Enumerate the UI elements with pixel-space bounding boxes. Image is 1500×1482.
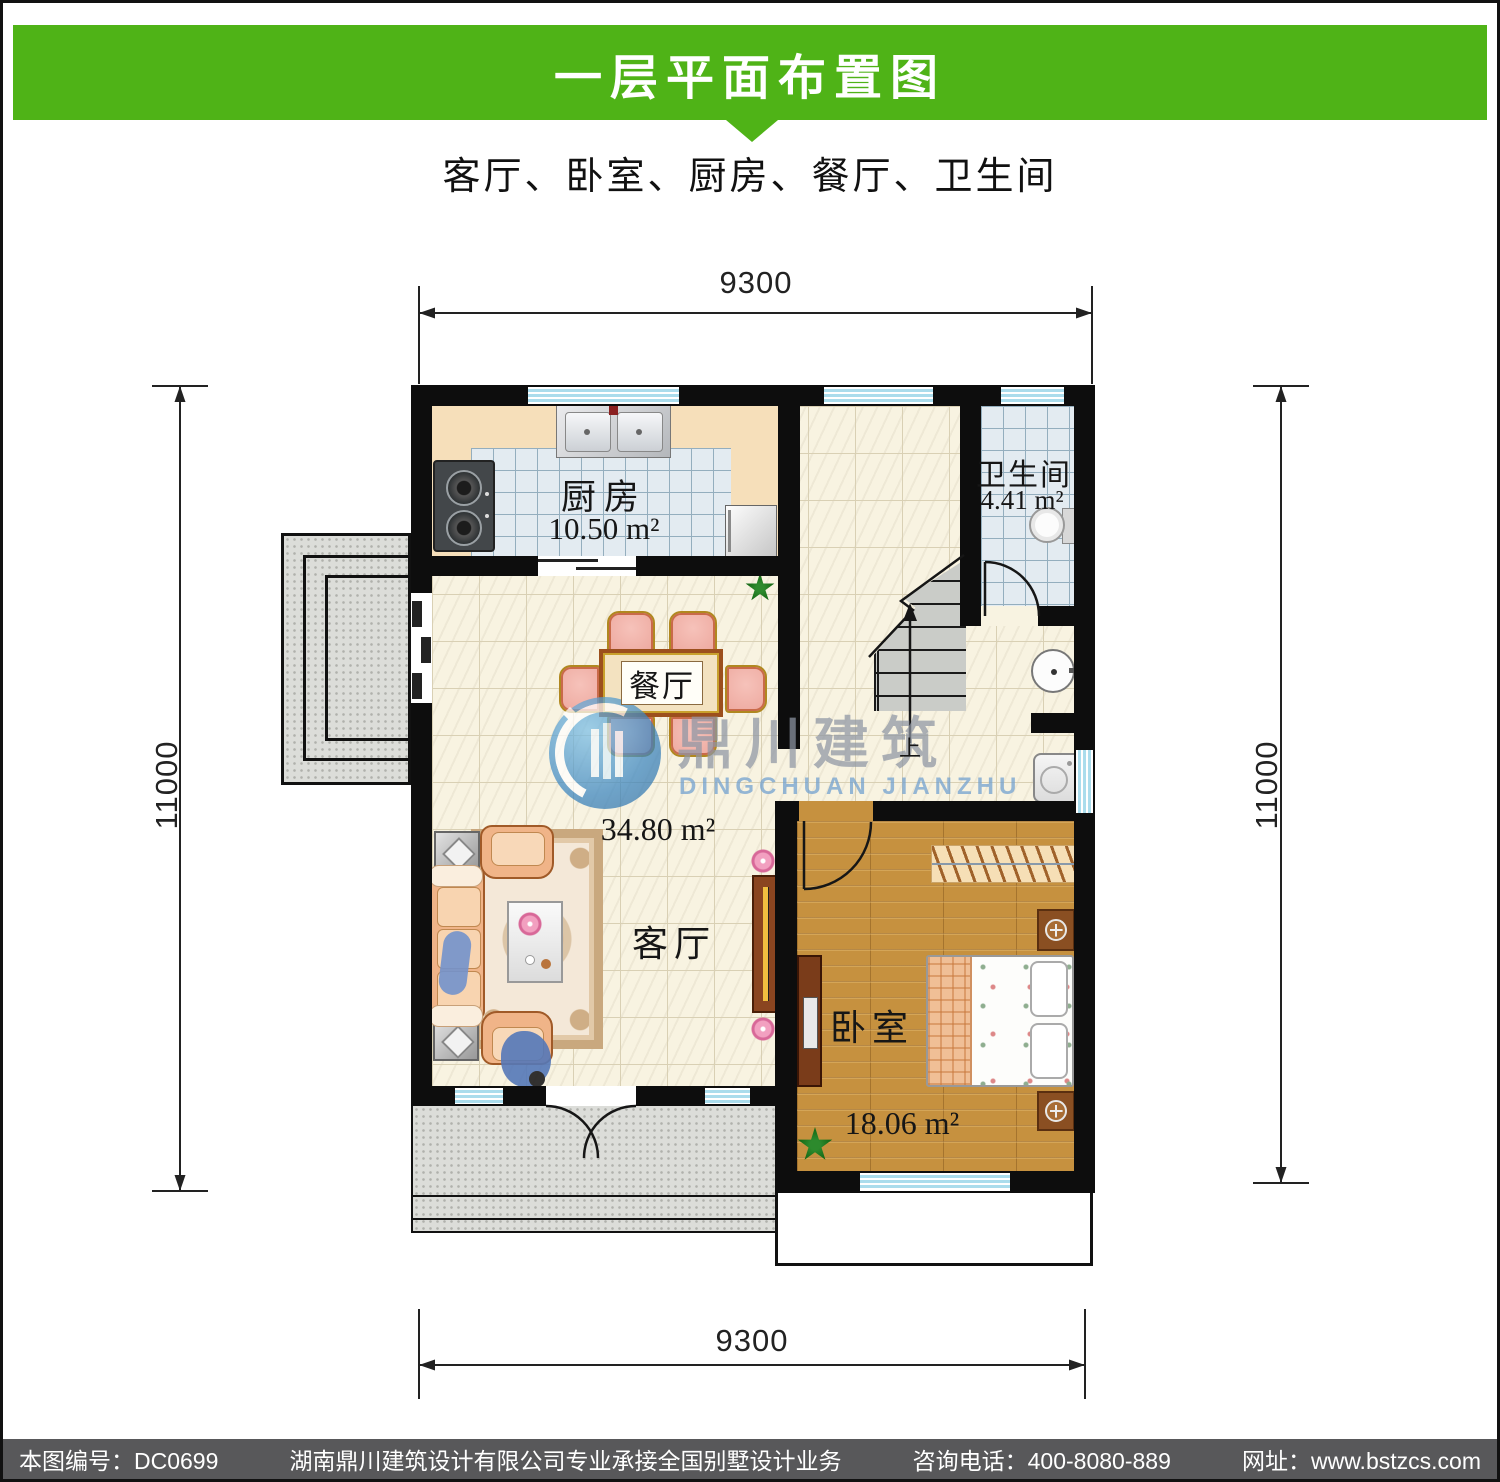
- bed: [926, 955, 1074, 1087]
- bathroom-door-opening: [981, 606, 1038, 626]
- tv-screen: [763, 887, 768, 1001]
- footer-company: 湖南鼎川建筑设计有限公司专业承接全国别墅设计业务: [290, 1442, 842, 1476]
- burner: [446, 510, 482, 546]
- bed-pillow: [1030, 961, 1068, 1017]
- logo-bar: [615, 731, 623, 777]
- kitchen-area-label: 10.50 m²: [539, 511, 669, 547]
- fridge-handle: [728, 510, 731, 552]
- kitchen-sink-icon: [556, 402, 671, 458]
- door-tick: [421, 637, 431, 663]
- slide-leaf: [576, 567, 636, 570]
- door-tick: [412, 601, 422, 627]
- nightstand: [1037, 909, 1075, 951]
- porch-step-line: [411, 1195, 781, 1197]
- wall-top: [411, 385, 1095, 406]
- window-living-right: [705, 1088, 750, 1104]
- dim-left-value: 11000: [149, 737, 185, 833]
- bedroom-terrace: [775, 1189, 1093, 1266]
- dining-label: 餐厅: [629, 661, 695, 706]
- sofa-cushion: [437, 887, 481, 927]
- window-kitchen: [528, 387, 679, 404]
- dining-chair: [669, 611, 717, 653]
- washer-drum: [1040, 766, 1068, 794]
- dim-top-value: 9300: [691, 265, 821, 301]
- dim-bottom-value: 9300: [687, 1323, 817, 1359]
- logo-bar: [591, 729, 599, 777]
- sink-drain: [584, 429, 590, 435]
- living-label: 客厅: [609, 915, 739, 967]
- flower-icon: [749, 1015, 777, 1043]
- nightstand-lamp: [1045, 1100, 1067, 1122]
- watermark-cn: 鼎川建筑: [677, 699, 997, 780]
- window-living-left: [455, 1088, 503, 1104]
- window-hall: [824, 387, 933, 404]
- sofa-armrest: [429, 865, 483, 887]
- bed-pillow: [1030, 1023, 1068, 1079]
- entry-porch: [411, 1106, 781, 1233]
- sink-drain: [636, 429, 642, 435]
- slide-leaf: [538, 559, 598, 562]
- dining-chair: [607, 611, 655, 653]
- flower-icon: [749, 847, 777, 875]
- wall-bedroom-left: [775, 801, 797, 1193]
- armchair-cushion: [491, 832, 545, 866]
- left-terrace-step: [325, 575, 411, 741]
- sofa-armrest: [429, 1005, 483, 1027]
- washer-knob: [1067, 761, 1072, 766]
- nightstand: [1037, 1091, 1075, 1131]
- table-dot: [541, 959, 551, 969]
- footer-plan-no: 本图编号：DC0699: [19, 1442, 218, 1476]
- bathroom-area-label: 4.41 m²: [959, 485, 1085, 516]
- person-figure: [501, 1031, 551, 1087]
- person-head: [529, 1071, 545, 1087]
- kitchen-sliding-door: [538, 556, 636, 576]
- watermark-logo-icon: [549, 697, 661, 809]
- burner: [446, 470, 482, 506]
- dim-right-value: 11000: [1249, 737, 1285, 833]
- wall-left: [411, 385, 432, 1106]
- entry-door-opening: [546, 1086, 636, 1106]
- logo-bar: [603, 723, 611, 779]
- wash-basin-icon: [1031, 649, 1075, 693]
- poster-canvas: 一层平面布置图 客厅、卧室、厨房、餐厅、卫生间: [0, 0, 1500, 1482]
- wall-hall-stub: [1031, 713, 1075, 733]
- window-laundry: [1076, 750, 1093, 813]
- dining-table-label-box: 餐厅: [621, 661, 703, 705]
- lamp-icon: [441, 1025, 475, 1059]
- footer-website: 网址：www.bstzcs.com: [1242, 1442, 1481, 1476]
- living-area-label: 34.80 m²: [573, 811, 743, 848]
- fridge-icon: [725, 505, 777, 557]
- table-dot: [525, 955, 535, 965]
- porch-step-line: [411, 1218, 781, 1220]
- bedroom-area-label: 18.06 m²: [817, 1105, 987, 1142]
- nightstand-lamp: [1045, 919, 1067, 941]
- bedroom-label: 卧室: [805, 999, 939, 1051]
- terrace-door: [411, 593, 432, 703]
- basin-drain: [1051, 669, 1057, 675]
- coffee-table: [507, 901, 563, 983]
- stove-knob: [485, 492, 489, 496]
- armchair: [480, 825, 554, 879]
- footer-phone: 咨询电话：400-8080-889: [913, 1442, 1171, 1476]
- clothes-rack: [931, 845, 1075, 883]
- stairs-up-label: 上: [896, 731, 924, 763]
- rack-rail: [932, 863, 1074, 865]
- washing-machine-icon: [1033, 753, 1076, 803]
- floor-plan: 鼎川建筑 DINGCHUAN JIANZHU 厨房 10.50 m² 卫生间 4…: [3, 3, 1500, 1482]
- watermark-en: DINGCHUAN JIANZHU: [679, 773, 999, 801]
- door-tick: [412, 673, 422, 699]
- stove-knob: [485, 514, 489, 518]
- stove-icon: [433, 460, 495, 552]
- window-bedroom: [860, 1173, 1010, 1191]
- window-bathroom: [1001, 387, 1064, 404]
- footer-bar: 本图编号：DC0699 湖南鼎川建筑设计有限公司专业承接全国别墅设计业务 咨询电…: [3, 1439, 1497, 1479]
- table-flowers-icon: [517, 911, 543, 937]
